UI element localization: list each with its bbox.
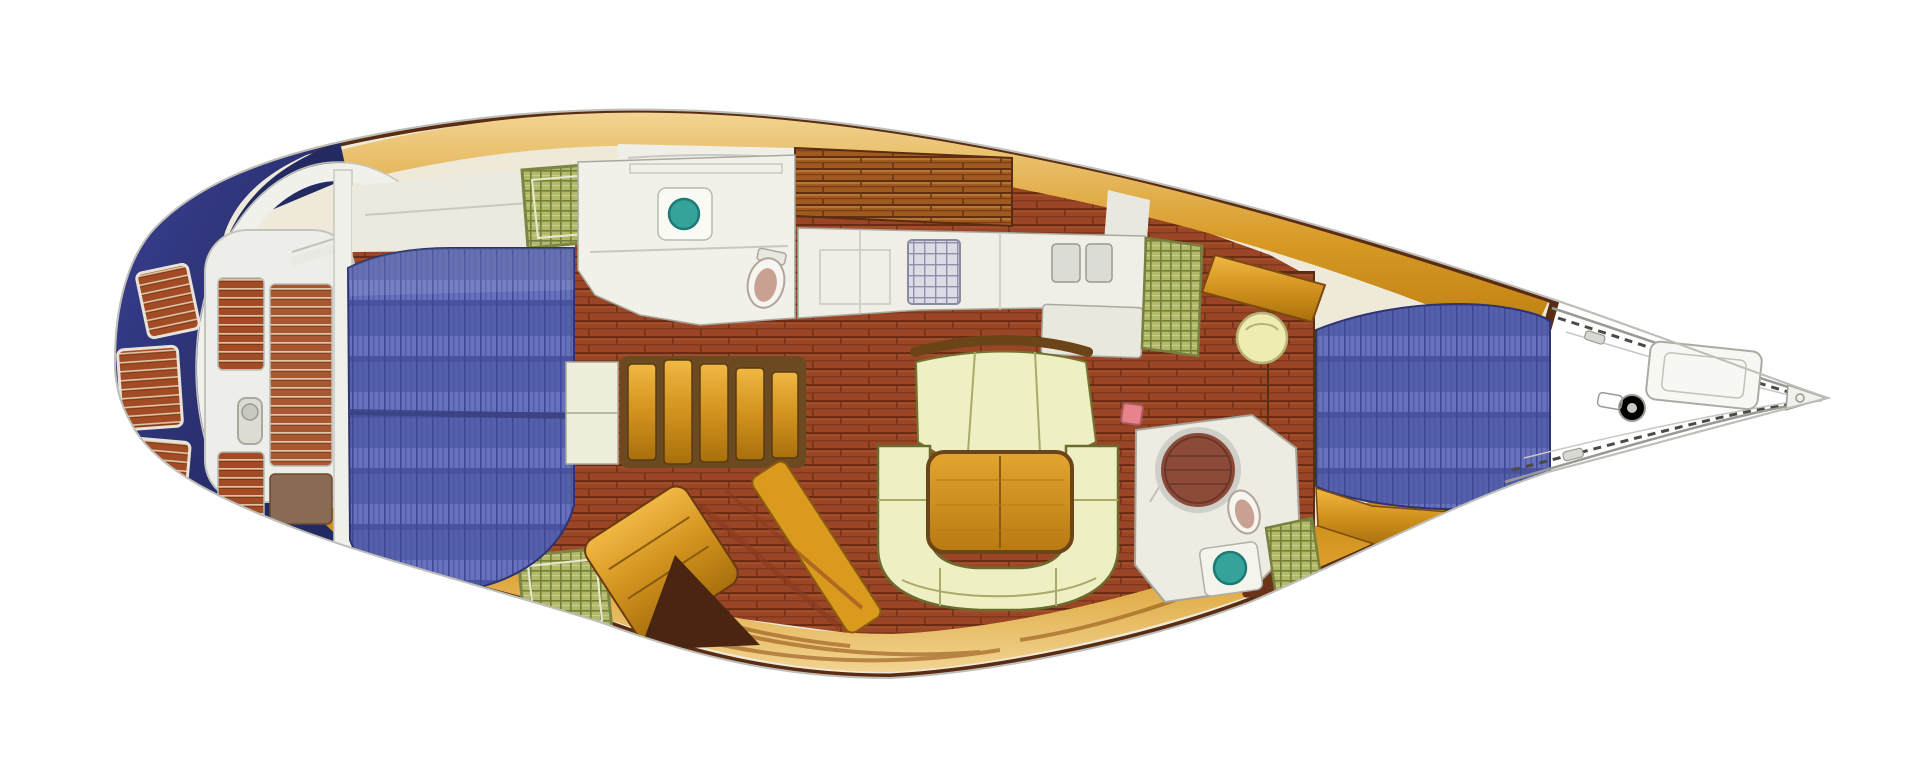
mast-step [1121, 403, 1144, 426]
coachroof-teak [795, 148, 1012, 226]
salon-bench [916, 352, 1096, 455]
companionway-steps [620, 356, 806, 468]
anchor-locker [1645, 341, 1762, 410]
forward-head-basin [1214, 552, 1246, 584]
stool [1237, 313, 1287, 363]
cockpit-seat [218, 278, 264, 370]
cockpit [205, 230, 355, 538]
compass [242, 404, 258, 420]
galley-sink [1052, 244, 1080, 282]
boat-floor-plan [0, 0, 1920, 771]
aft-head [578, 155, 795, 325]
galley-sink [1086, 244, 1112, 282]
salon-door [1142, 238, 1202, 356]
cockpit-seat [270, 284, 332, 466]
stove [908, 240, 960, 304]
boat-floor-plan-svg [0, 0, 1920, 771]
aft-head-basin [669, 199, 699, 229]
deck-hatch-forward [1266, 518, 1322, 596]
cockpit-grate [270, 474, 332, 524]
aft-cabin-berth [348, 248, 574, 592]
page [0, 0, 1920, 771]
berth-seam [348, 412, 574, 416]
windlass-drum [1627, 403, 1637, 413]
cockpit-seat [218, 452, 264, 538]
